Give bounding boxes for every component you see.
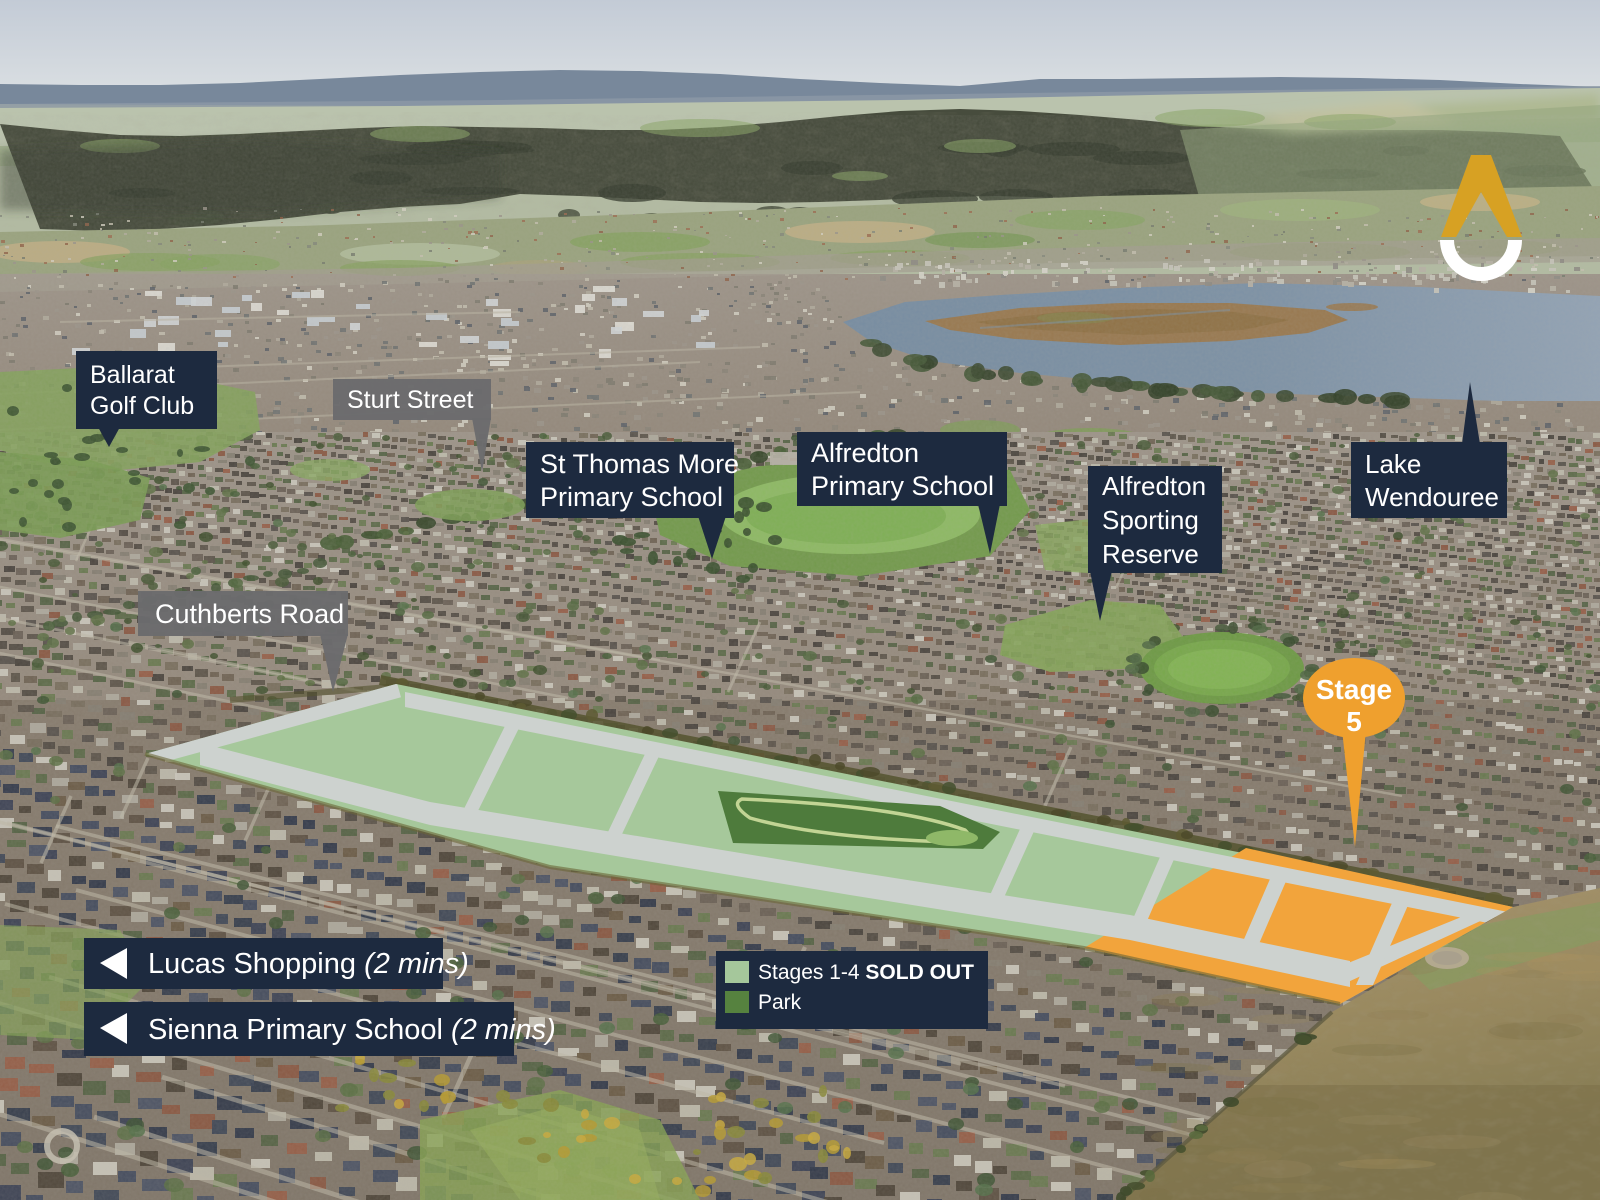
- svg-text:Golf Club: Golf Club: [90, 392, 194, 420]
- svg-text:5: 5: [1346, 706, 1362, 737]
- svg-text:Primary School: Primary School: [811, 471, 994, 501]
- svg-text:Stage: Stage: [1316, 674, 1392, 705]
- svg-text:Lucas Shopping (2 mins): Lucas Shopping (2 mins): [148, 948, 469, 980]
- svg-text:St Thomas More: St Thomas More: [540, 449, 739, 479]
- svg-text:Alfredton: Alfredton: [1102, 471, 1206, 501]
- svg-text:Ballarat: Ballarat: [90, 361, 175, 389]
- svg-text:Primary School: Primary School: [540, 482, 723, 512]
- svg-text:Cuthberts Road: Cuthberts Road: [155, 599, 344, 629]
- svg-text:Stages 1-4 SOLD OUT: Stages 1-4 SOLD OUT: [758, 961, 974, 984]
- svg-text:Alfredton: Alfredton: [811, 438, 919, 468]
- svg-text:Sturt Street: Sturt Street: [347, 386, 473, 414]
- svg-text:Sporting: Sporting: [1102, 505, 1199, 535]
- svg-text:Sienna Primary School (2 mins): Sienna Primary School (2 mins): [148, 1014, 556, 1046]
- svg-text:Lake: Lake: [1365, 449, 1421, 479]
- svg-text:Wendouree: Wendouree: [1365, 482, 1499, 512]
- svg-text:Park: Park: [758, 991, 802, 1014]
- svg-text:Reserve: Reserve: [1102, 539, 1199, 569]
